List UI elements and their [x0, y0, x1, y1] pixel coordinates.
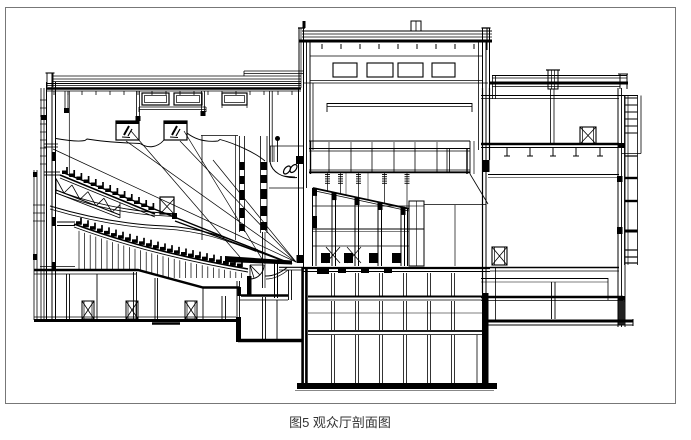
svg-text:图5 观众厅剖面图: 图5 观众厅剖面图 — [289, 415, 391, 430]
